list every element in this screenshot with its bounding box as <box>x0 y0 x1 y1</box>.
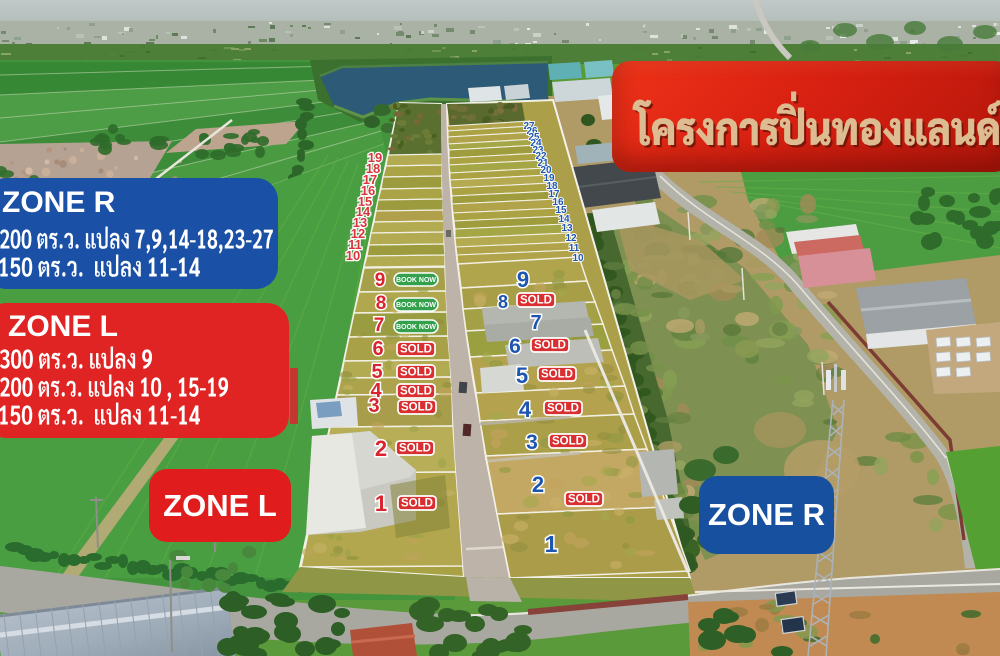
svg-text:4: 4 <box>519 397 532 422</box>
svg-text:7: 7 <box>374 315 385 336</box>
svg-text:SOLD: SOLD <box>568 494 600 506</box>
svg-text:SOLD: SOLD <box>399 443 431 455</box>
svg-text:6: 6 <box>372 338 383 360</box>
svg-text:SOLD: SOLD <box>547 403 579 415</box>
svg-text:8: 8 <box>376 293 387 314</box>
svg-text:SOLD: SOLD <box>401 402 433 414</box>
svg-text:BOOK NOW: BOOK NOW <box>396 277 436 284</box>
svg-text:SOLD: SOLD <box>552 436 584 448</box>
svg-text:2: 2 <box>375 436 387 461</box>
svg-text:SOLD: SOLD <box>541 369 573 381</box>
svg-text:10: 10 <box>346 248 360 263</box>
svg-text:9: 9 <box>375 270 386 291</box>
svg-text:9: 9 <box>517 267 529 292</box>
svg-text:3: 3 <box>368 395 379 417</box>
svg-text:SOLD: SOLD <box>534 340 566 352</box>
svg-text:6: 6 <box>509 335 521 358</box>
svg-text:SOLD: SOLD <box>520 295 552 307</box>
svg-text:SOLD: SOLD <box>401 498 433 510</box>
svg-text:BOOK NOW: BOOK NOW <box>396 302 436 309</box>
svg-text:1: 1 <box>375 491 387 516</box>
svg-text:2: 2 <box>532 472 544 497</box>
svg-text:SOLD: SOLD <box>400 367 432 379</box>
svg-text:10: 10 <box>572 253 584 264</box>
svg-text:SOLD: SOLD <box>400 344 432 356</box>
svg-text:1: 1 <box>545 531 558 557</box>
svg-text:BOOK NOW: BOOK NOW <box>396 324 436 331</box>
svg-text:5: 5 <box>516 363 528 388</box>
svg-text:SOLD: SOLD <box>400 386 432 398</box>
svg-text:3: 3 <box>526 431 538 454</box>
svg-text:8: 8 <box>498 292 508 312</box>
svg-text:7: 7 <box>530 312 541 334</box>
